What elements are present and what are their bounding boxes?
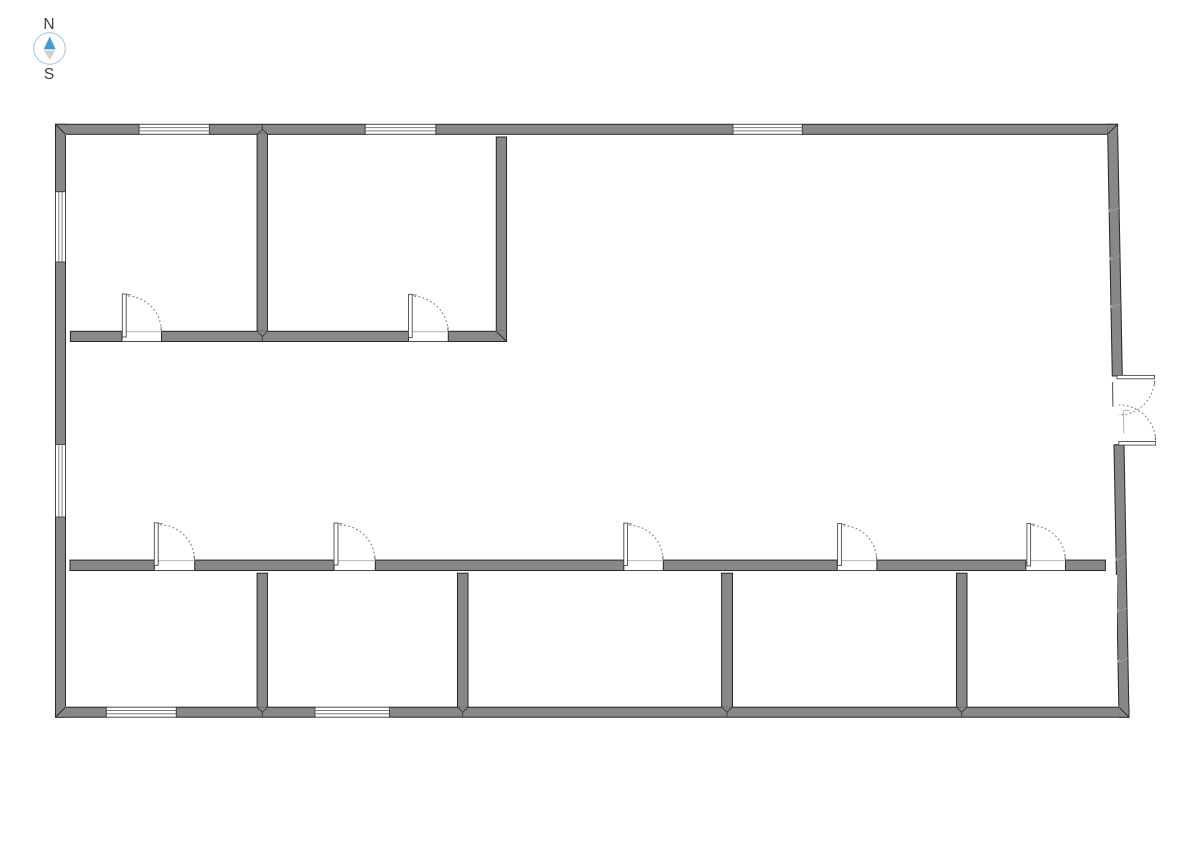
svg-text:S: S <box>44 66 54 83</box>
svg-text:N: N <box>43 16 54 33</box>
